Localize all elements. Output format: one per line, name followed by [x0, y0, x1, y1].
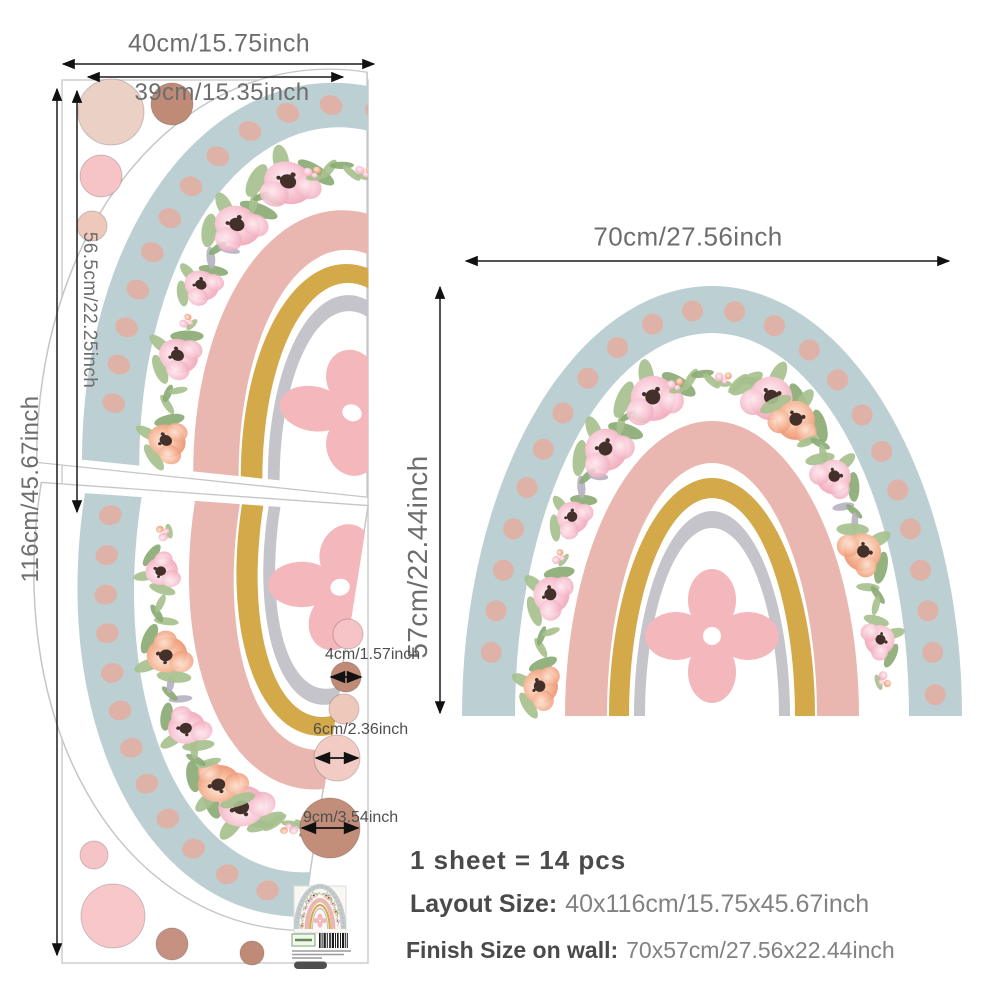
sheet-height-label: 116cm/45.67inch [17, 395, 45, 582]
dot-sticker [333, 619, 363, 649]
dot-4cm-label: 4cm/1.57inch [325, 646, 420, 664]
piece-height-label: 56.5cm/22.25inch [78, 232, 100, 388]
finish-size-label: Finish Size on wall: [406, 937, 618, 963]
dot-sticker [329, 694, 359, 724]
piece-width-label: 39cm/15.35inch [134, 79, 309, 107]
dot-sticker [80, 155, 122, 197]
layout-size-label: Layout Size: [410, 890, 557, 918]
dot-sticker [156, 928, 188, 960]
dot-sticker [81, 884, 145, 948]
layout-size-value: 40x116cm/15.75x45.67inch [565, 890, 869, 918]
finish-height-label: 57cm/22.44inch [402, 455, 434, 658]
wall-sticker-size-diagram: 40cm/15.75inch 39cm/15.35inch 116cm/45.6… [0, 0, 1000, 1000]
finish-size-text: Finish Size on wall:70x57cm/27.56x22.44i… [406, 937, 895, 964]
finish-size-value: 70x57cm/27.56x22.44inch [626, 937, 895, 963]
dot-6cm-label: 6cm/2.36inch [313, 721, 408, 739]
finish-width-label: 70cm/27.56inch [593, 222, 782, 253]
sheet-width-label: 40cm/15.75inch [128, 30, 310, 59]
layout-size-text: Layout Size:40x116cm/15.75x45.67inch [410, 890, 869, 919]
finish-rainbow [462, 286, 962, 726]
dot-9cm-label: 9cm/3.54inch [303, 809, 398, 827]
dot-sticker [80, 841, 108, 869]
sheet-count-text: 1 sheet = 14 pcs [410, 845, 626, 876]
dot-sticker [240, 941, 264, 965]
label-badge [294, 962, 327, 970]
